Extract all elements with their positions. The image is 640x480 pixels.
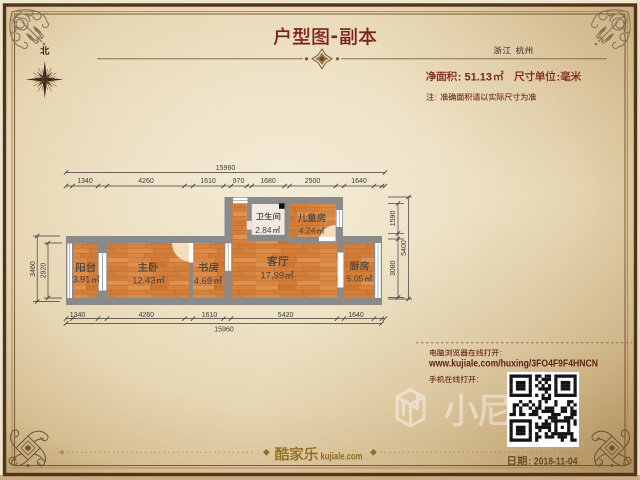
svg-text:www.kujiale.com/huxing/3FO4F9F: www.kujiale.com/huxing/3FO4F9F4HNCN: [428, 359, 598, 370]
svg-text:1340: 1340: [70, 312, 86, 319]
svg-text:4260: 4260: [138, 178, 154, 185]
svg-text:1640: 1640: [348, 312, 364, 319]
svg-text:4.69: 4.69: [194, 276, 213, 287]
svg-text:15960: 15960: [216, 165, 236, 172]
svg-text:2920: 2920: [41, 263, 48, 279]
svg-text:4.24: 4.24: [299, 226, 316, 236]
svg-text:1680: 1680: [260, 178, 276, 185]
svg-text:kujiale.com: kujiale.com: [321, 451, 363, 463]
svg-text:: 2018-11-04: : 2018-11-04: [529, 456, 578, 468]
svg-text::: :: [435, 93, 437, 102]
svg-text:1610: 1610: [200, 178, 216, 185]
svg-text:3080: 3080: [390, 260, 397, 276]
svg-text:2500: 2500: [305, 178, 321, 185]
svg-text:1340: 1340: [77, 178, 93, 185]
svg-text:2.84: 2.84: [255, 225, 272, 235]
svg-text:3.91: 3.91: [73, 275, 91, 285]
svg-text:1610: 1610: [202, 312, 218, 319]
svg-text::: :: [500, 349, 502, 358]
svg-text:17.99: 17.99: [260, 271, 284, 282]
svg-text:5.05: 5.05: [347, 274, 364, 284]
svg-text:15960: 15960: [214, 327, 234, 334]
svg-text:3460: 3460: [30, 261, 37, 277]
svg-text:: 51.13: : 51.13: [458, 71, 492, 83]
svg-text:12.43: 12.43: [132, 275, 155, 285]
svg-text:5400: 5400: [401, 240, 408, 256]
svg-text:5420: 5420: [278, 312, 294, 319]
svg-text::: :: [476, 375, 478, 384]
svg-text::: :: [557, 71, 561, 83]
svg-text:4260: 4260: [139, 312, 155, 319]
svg-text:1640: 1640: [351, 178, 367, 185]
svg-text:970: 970: [233, 178, 245, 185]
svg-text:1590: 1590: [390, 211, 397, 227]
